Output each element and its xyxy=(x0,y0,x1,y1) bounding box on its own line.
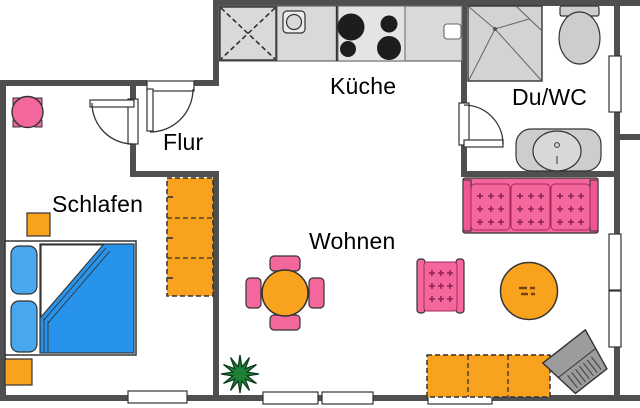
wall-branch-right xyxy=(620,134,640,140)
room-label-living: Wohnen xyxy=(309,228,395,255)
bathroom-door-open-leaf xyxy=(464,140,503,147)
armchair-pattern xyxy=(429,270,453,302)
pillow xyxy=(11,301,37,352)
small-appliance xyxy=(444,24,461,39)
tv xyxy=(543,330,613,398)
kitchen-counter xyxy=(219,6,462,61)
bathroom-door-leaf xyxy=(459,103,469,145)
nightstand-bottom xyxy=(5,359,32,385)
plant-leaves xyxy=(221,355,259,393)
wall-kitchen-left xyxy=(213,0,219,86)
sink-drain xyxy=(287,15,302,30)
sofa xyxy=(463,178,598,233)
sofa-arm xyxy=(463,180,471,231)
coffee-table-top xyxy=(501,263,558,320)
entrance-door-swing xyxy=(150,89,193,132)
bedroom-door-open-leaf xyxy=(90,100,134,107)
sideboard-body xyxy=(427,355,550,397)
bedroom-door-swing xyxy=(92,103,133,144)
burner xyxy=(381,16,398,33)
entrance-door xyxy=(147,81,194,132)
shower xyxy=(468,6,542,81)
wardrobe xyxy=(167,178,213,296)
double-bed xyxy=(5,241,136,355)
entrance-door-open-leaf xyxy=(147,89,153,131)
room-label-hallway: Flur xyxy=(163,129,203,156)
wall-top xyxy=(213,0,640,6)
dining-chair xyxy=(270,315,300,330)
window-living-1 xyxy=(263,392,318,404)
room-label-kitchen: Küche xyxy=(330,73,396,100)
bathroom-door-swing xyxy=(464,105,503,144)
wall-bath-bottom xyxy=(461,171,620,177)
shower-drain xyxy=(493,27,497,31)
window-right-lower xyxy=(609,291,621,347)
wall-bedroom-living xyxy=(213,171,219,401)
coffee-table xyxy=(501,263,558,320)
toilet-bowl xyxy=(559,12,600,64)
dining-set xyxy=(246,256,324,330)
dining-table xyxy=(262,270,308,316)
dining-chair xyxy=(270,256,300,271)
plant xyxy=(221,355,259,393)
window-living-2 xyxy=(322,392,373,404)
bedroom-door xyxy=(90,99,138,144)
kitchen-sink xyxy=(283,11,305,33)
shower-tray xyxy=(468,6,542,81)
dining-chair xyxy=(309,278,324,308)
wall-hall-bottom xyxy=(130,171,219,177)
burner xyxy=(377,36,401,60)
nightstand-top xyxy=(27,213,50,236)
burner xyxy=(338,14,365,41)
sofa-arm xyxy=(590,180,598,231)
window-bedroom xyxy=(128,391,187,403)
window-right-upper xyxy=(609,234,621,290)
room-label-bathroom: Du/WC xyxy=(512,84,587,111)
floor-plan: Küche Du/WC Flur Schlafen Wohnen xyxy=(0,0,640,408)
small-round-table xyxy=(12,97,43,128)
table-top xyxy=(12,97,43,128)
bathroom-vanity xyxy=(516,129,601,171)
bathroom-door xyxy=(459,103,503,147)
window-bathroom xyxy=(609,56,621,112)
toilet xyxy=(559,6,600,64)
stove xyxy=(338,6,406,61)
wall-entry-left xyxy=(0,80,147,86)
room-label-bedroom: Schlafen xyxy=(52,191,143,218)
wardrobe-body xyxy=(167,178,213,296)
pillow xyxy=(11,246,37,294)
entrance-door-leaf xyxy=(147,81,194,91)
burner xyxy=(340,41,356,57)
dining-chair xyxy=(246,278,261,308)
vanity-basin xyxy=(533,131,581,171)
sideboard xyxy=(427,355,550,397)
armchair xyxy=(417,259,464,313)
